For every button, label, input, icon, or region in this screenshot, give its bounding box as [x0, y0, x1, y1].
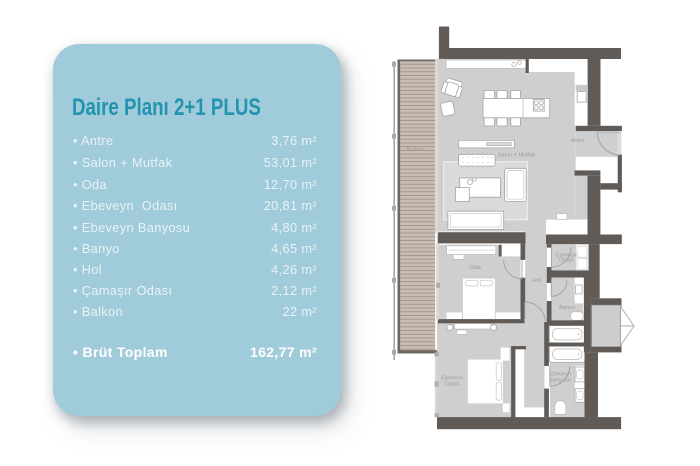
- svg-text:Balkon: Balkon: [407, 147, 424, 153]
- svg-text:Hol: Hol: [533, 278, 541, 284]
- svg-text:Odası: Odası: [445, 382, 460, 388]
- svg-text:Oda: Oda: [470, 265, 481, 271]
- svg-text:Banyo: Banyo: [559, 305, 575, 311]
- svg-text:Salon + Mutfak: Salon + Mutfak: [498, 152, 536, 158]
- svg-text:Odası: Odası: [559, 258, 574, 264]
- svg-text:Banyosu: Banyosu: [549, 378, 571, 384]
- svg-text:Antre: Antre: [571, 138, 584, 144]
